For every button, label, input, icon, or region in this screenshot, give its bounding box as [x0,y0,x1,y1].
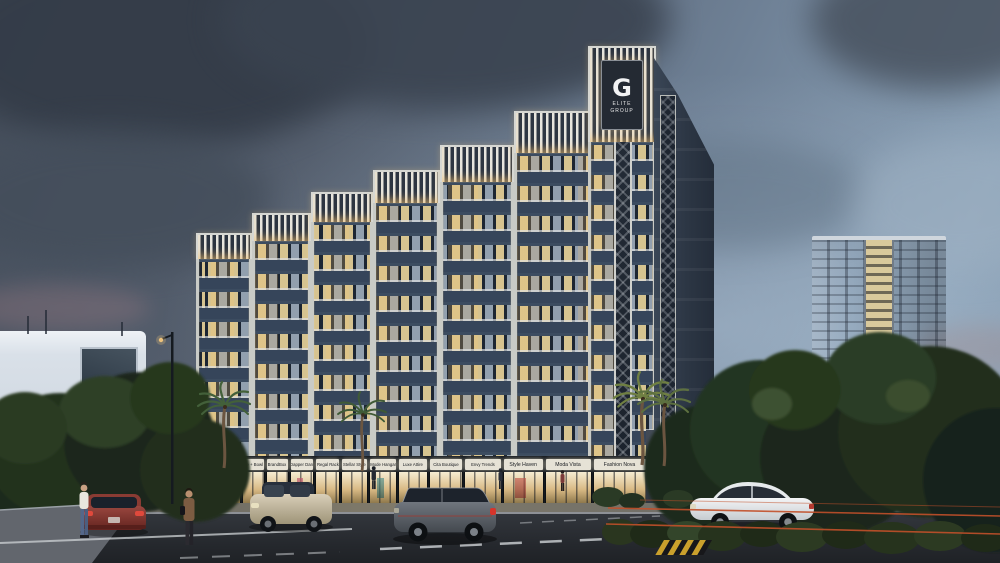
shopfront: Fashion Nova [593,458,647,505]
shop-name: BrandBox [268,462,287,467]
shop-window [290,472,314,505]
shopfront: Cita Boutique [429,458,463,505]
building-bay [440,145,514,458]
shopfront: BrandBox [266,458,289,505]
developer-logo-panel: G ELITE GROUP [601,60,643,130]
shop-signboard: Vibe Look [221,459,240,470]
shop-signboard: Paper Tale [199,459,218,470]
bay-floors [252,241,311,458]
crown-pediment [373,170,440,203]
shop-name: Fashion Nova [604,462,635,467]
building-bay [373,170,440,458]
shop-window [369,472,397,505]
logo-tower: G ELITE GROUP [588,46,656,458]
shop-window [545,472,592,505]
bay-floors [440,182,514,458]
background-highrise-tower [812,236,946,448]
sidewalk [140,503,700,514]
crown-pediment [311,192,373,222]
shop-name: Be + Bowl [244,462,263,467]
shop-signboard: Fashion Nova [594,459,646,470]
shop-name: Envy Trends [471,462,495,467]
retail-shopfront-strip: Paper Tale Vibe Look Be + Bowl BrandBox … [196,456,648,505]
shop-window [198,472,219,505]
shopfront: Envy Trends [464,458,501,505]
shop-window [593,472,647,505]
shop-signboard: Mode Hangar [370,459,396,470]
shopfront: Regal Rack [315,458,340,505]
building-bay [196,233,252,458]
shop-signboard: Style Haven [504,459,543,470]
shopfront: Mode Hangar [369,458,397,505]
office-glass-curtainwall [80,347,138,447]
crown-pediment [514,111,592,153]
shop-signboard: Be + Bowl [243,459,263,470]
logo-text-line1: ELITE [613,101,632,107]
shop-name: Moda Vista [556,462,581,467]
building-bay [311,192,373,458]
crown-pediment [252,213,311,241]
shop-name: Vibe Look [221,462,240,467]
bay-floors [373,203,440,458]
logo-g-mark: G [612,76,632,100]
shopfront: Luxe Attire [398,458,428,505]
shop-name: Mode Hangar [370,462,396,467]
shop-window [220,472,241,505]
shop-name: Style Haven [510,462,538,467]
side-lattice-strip [660,95,676,468]
shopfront: Be + Bowl [242,458,264,505]
shop-window [315,472,340,505]
shop-signboard: Dapper Dan [291,459,313,470]
shop-signboard: Moda Vista [546,459,591,470]
tower-crown: G ELITE GROUP [588,46,656,142]
bay-floors [196,259,252,458]
shop-window [398,472,428,505]
shop-signboard: Regal Rack [316,459,339,470]
shop-signboard: Luxe Attire [399,459,427,470]
shop-name: Luxe Attire [403,462,423,467]
shop-window [341,472,367,505]
shop-name: Paper Tale [199,462,218,467]
shop-signboard: Stellar Style [342,459,366,470]
shop-window [242,472,264,505]
shop-window [503,472,544,505]
street-road [0,512,1000,563]
shop-window [464,472,501,505]
shop-name: Regal Rack [317,462,339,467]
shopfront: Paper Tale [198,458,219,505]
building-bay [252,213,311,458]
tower-lit-core [864,240,894,448]
shop-name: Dapper Dan [291,462,313,467]
background-office-building [0,331,146,451]
shop-signboard: Cita Boutique [430,459,462,470]
shop-name: Cita Boutique [433,462,459,467]
crown-pediment [196,233,252,259]
shop-name: Stellar Style [343,462,366,467]
shopfront: Moda Vista [545,458,592,505]
shopfront: Vibe Look [220,458,241,505]
gate-pillar [686,446,700,508]
crown-pediment [440,145,514,182]
building-bay [514,111,592,458]
dusk-building-render: G ELITE GROUP Paper Tale Vibe Look Be + … [0,0,1000,563]
shop-window [429,472,463,505]
compound-wall [646,430,716,508]
shop-window [266,472,289,505]
shop-signboard: Envy Trends [465,459,500,470]
shopfront: Style Haven [503,458,544,505]
bay-floors [514,153,592,458]
tower-lattice-band [614,142,632,458]
shop-signboard: BrandBox [267,459,288,470]
logo-text-line2: GROUP [610,108,633,114]
shopfront: Dapper Dan [290,458,314,505]
bay-floors [311,222,373,458]
shopfront: Stellar Style [341,458,367,505]
